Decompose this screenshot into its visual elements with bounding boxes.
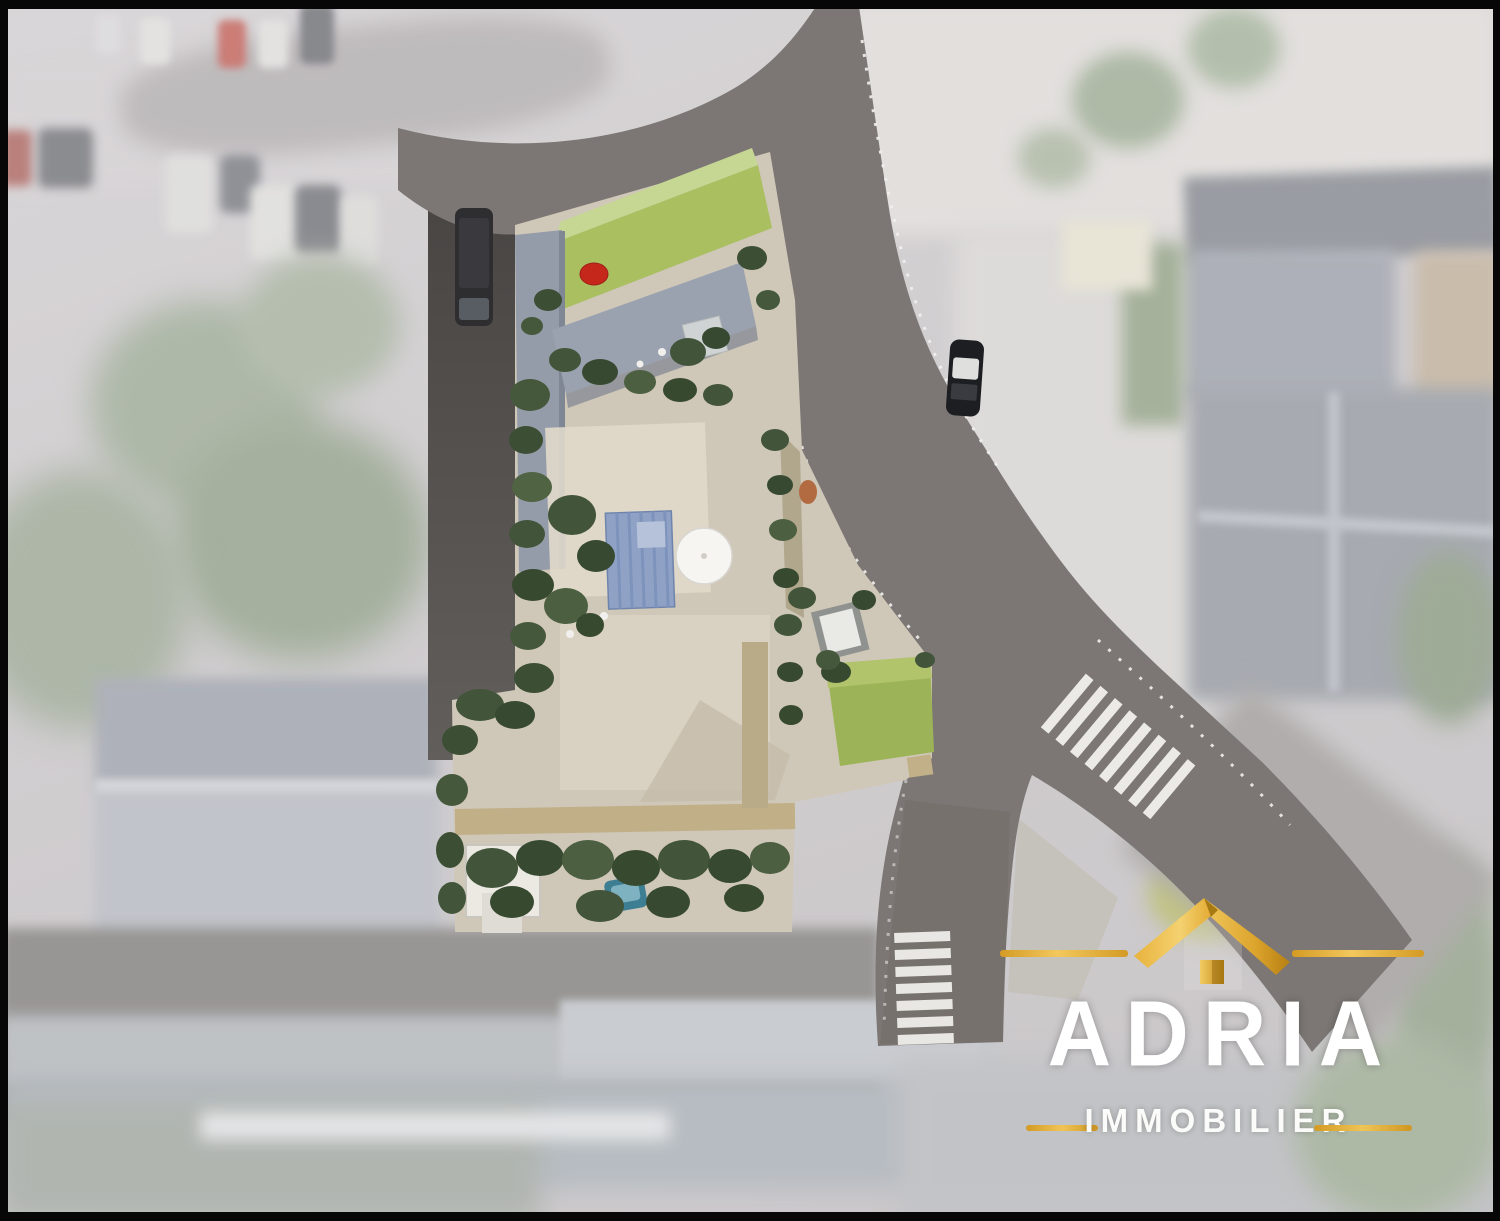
brand-name: ADRIA — [1000, 988, 1430, 1080]
frame-border-right — [1493, 0, 1500, 1221]
parasol-center — [701, 553, 707, 559]
frame-border-top — [0, 0, 1500, 9]
orange-table — [799, 480, 817, 504]
gold-roof-house-icon — [1128, 890, 1298, 994]
red-garden-table — [580, 263, 608, 285]
khaki-patch — [907, 754, 934, 777]
frame-border-left — [0, 0, 8, 1221]
aerial-site-plan-image: ADRIA IMMOBILIER — [0, 0, 1500, 1221]
gold-line-sub-right — [1314, 1125, 1412, 1131]
driving-car — [945, 339, 984, 417]
gold-line-right — [1292, 950, 1424, 957]
parked-black-van — [455, 208, 493, 326]
frame-border-bottom — [0, 1212, 1500, 1221]
blue-pergola-roof — [605, 511, 674, 609]
gold-line-left — [1000, 950, 1128, 957]
brand-subtitle: IMMOBILIER — [1000, 1104, 1430, 1137]
chimney-shade — [1212, 960, 1224, 984]
adria-logo: ADRIA IMMOBILIER — [1000, 888, 1430, 1178]
tan-path — [742, 642, 768, 808]
